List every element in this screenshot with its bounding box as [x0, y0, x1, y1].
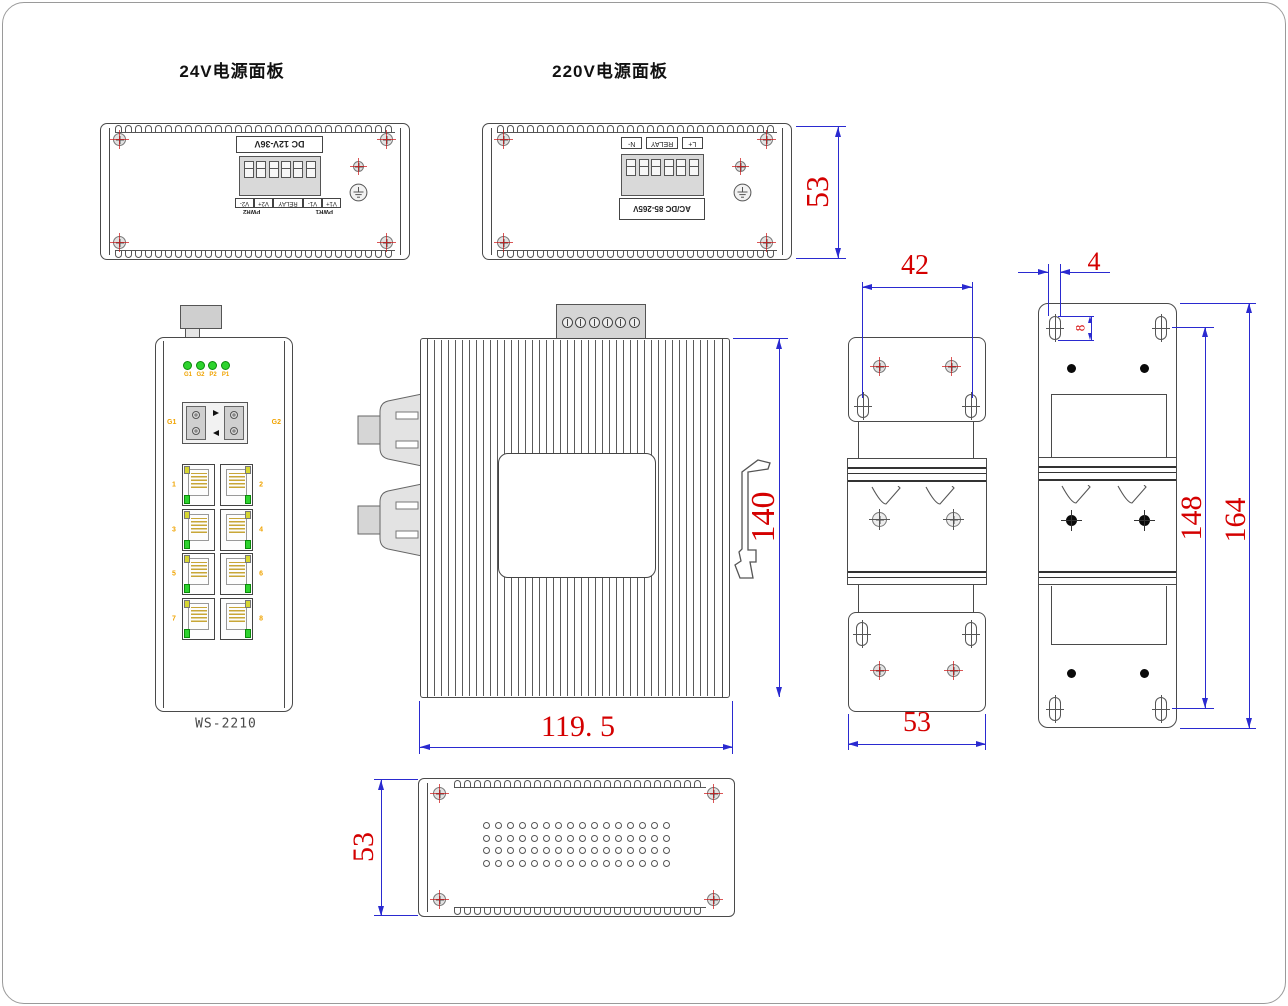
terminal-block-24v: [239, 156, 321, 196]
rail-screw: [946, 512, 961, 527]
title-24v-panel: 24V电源面板: [122, 57, 342, 82]
dim-53-depth: 53: [349, 832, 379, 862]
plate-screw: [873, 664, 886, 677]
ext-line: [1180, 303, 1256, 304]
status-led: P2: [208, 361, 218, 378]
fiber-label-g1: G1: [167, 419, 176, 426]
rail-screw: [872, 512, 887, 527]
mount-slot: [1049, 316, 1061, 340]
ext-line: [796, 258, 846, 259]
corner-screw: [760, 236, 773, 249]
led-label: P1: [221, 372, 231, 378]
ext-line: [1180, 728, 1256, 729]
screw-hole: [1067, 364, 1076, 373]
body-edge-left: [427, 339, 428, 697]
jack-pins-icon: [191, 518, 207, 533]
mount-slot: [965, 622, 977, 646]
rj45-port: 7: [182, 598, 215, 640]
panel-screw: [353, 161, 364, 172]
edge-cap-right: [400, 128, 401, 255]
plate-screw: [945, 360, 958, 373]
jack-pins-icon: [229, 518, 245, 533]
dim-119-5: 119. 5: [541, 712, 615, 742]
drawing-sheet: 24V电源面板 220V电源面板 DC 12V-36V PWR1 PWR2 V1…: [0, 0, 1288, 1006]
terminal-block-top: [556, 304, 646, 340]
mount-slot: [1155, 316, 1167, 340]
body-edge: [973, 422, 974, 458]
ext-line: [1058, 340, 1094, 341]
fiber-module: [182, 402, 248, 444]
mount-slot: [1049, 697, 1061, 721]
led-dot-icon: [183, 361, 192, 370]
terminal-cell: L+: [682, 137, 703, 149]
status-led: G1: [183, 361, 193, 378]
terminal-cell: V2-: [235, 198, 254, 208]
terminal-block-220v: [621, 154, 704, 196]
pwr1-label: PWR1: [316, 208, 333, 214]
earth-ground-icon: [349, 183, 368, 202]
terminal-cells-24v: V1+V1-RELAYV2+V2-: [235, 198, 341, 208]
rail-band: [1039, 577, 1176, 578]
rj45-port: 8: [220, 598, 253, 640]
port-led-green-icon: [245, 629, 251, 638]
led-label: G1: [183, 372, 193, 378]
rail-hole: [1066, 515, 1077, 526]
voltage-label-220v: AC/DC 85-265V: [619, 198, 705, 220]
edge-cap-left: [427, 783, 428, 912]
rail-band: [848, 577, 986, 578]
terminal-cell: RELAY: [646, 137, 677, 149]
corner-screw: [707, 787, 720, 800]
rj45-port: 1: [182, 464, 215, 506]
rail-hole: [1139, 515, 1150, 526]
corner-screw: [113, 236, 126, 249]
corner-screw: [497, 236, 510, 249]
corner-screw: [433, 787, 446, 800]
ext-line: [862, 282, 863, 398]
triangle-left-icon: [213, 430, 219, 436]
mount-slot: [1155, 697, 1167, 721]
edge-scallops-bottom: [454, 907, 706, 915]
dim-line-4-left: [1018, 272, 1048, 273]
body-edge: [858, 585, 859, 612]
terminal-cell: RELAY: [273, 198, 303, 208]
led-row: G1G2P2P1: [183, 361, 231, 378]
body-edge: [858, 422, 859, 458]
body-edge: [973, 585, 974, 612]
triangle-right-icon: [213, 410, 219, 416]
port-number: 2: [259, 482, 263, 489]
led-label: P2: [208, 372, 218, 378]
rail-band: [1039, 466, 1176, 468]
dim-line-8: [1091, 316, 1092, 340]
port-led-yellow-icon: [184, 511, 190, 519]
corner-screw: [113, 133, 126, 146]
title-220v-panel: 220V电源面板: [500, 57, 720, 82]
clip-notch: [1060, 485, 1098, 505]
jack-pins-icon: [229, 607, 245, 622]
port-led-green-icon: [245, 540, 251, 549]
device-edge: [1166, 394, 1167, 458]
rj45-port: 3: [182, 509, 215, 551]
fiber-port-g1: [186, 406, 206, 440]
edge-cap-left: [109, 128, 110, 255]
port-number: 3: [172, 526, 176, 533]
port-led-yellow-icon: [245, 555, 251, 563]
dim-53-bracket: 53: [903, 709, 931, 737]
dim-164: 164: [1221, 498, 1251, 543]
device-edge: [1166, 586, 1167, 644]
port-number: 6: [259, 571, 263, 578]
rail-band: [848, 467, 986, 469]
dim-42: 42: [901, 252, 929, 280]
dim-line-53-panel: [838, 127, 839, 258]
dim-line-53-depth: [381, 780, 382, 916]
port-led-yellow-icon: [184, 466, 190, 474]
mount-plate-top: [848, 337, 986, 422]
terminal-cell: V1+: [322, 198, 341, 208]
rail-band: [848, 480, 986, 482]
jack-pins-icon: [191, 562, 207, 577]
edge-cap-right: [782, 128, 783, 255]
device-edge: [1051, 394, 1167, 395]
panel-screw: [735, 161, 746, 172]
screw-hole: [1140, 669, 1149, 678]
panel-edge-right: [284, 341, 285, 708]
corner-screw: [760, 133, 773, 146]
mount-slot: [857, 394, 869, 418]
clip-notch: [924, 486, 962, 506]
mount-slot: [856, 622, 868, 646]
din-clip-tab: [180, 305, 222, 329]
edge-scallops-top: [497, 125, 777, 133]
dim-140: 140: [747, 492, 781, 543]
port-number: 7: [172, 616, 176, 623]
port-led-green-icon: [184, 495, 190, 504]
edge-scallops-bottom: [497, 250, 777, 258]
port-led-yellow-icon: [184, 555, 190, 563]
plate-screw: [873, 360, 886, 373]
edge-cap-left: [491, 128, 492, 255]
rj45-port: 2: [220, 464, 253, 506]
port-number: 8: [259, 616, 263, 623]
jack-pins-icon: [229, 473, 245, 488]
terminal-labels-220v: L+RELAYN-: [619, 137, 705, 149]
rail-band: [848, 473, 986, 474]
device-edge: [1051, 644, 1167, 645]
corner-screw: [433, 893, 446, 906]
ext-line: [1048, 264, 1049, 316]
led-dot-icon: [208, 361, 217, 370]
fiber-label-g2: G2: [272, 419, 281, 426]
dim-4: 4: [1088, 249, 1101, 275]
screw-hole: [1140, 364, 1149, 373]
port-number: 4: [259, 526, 263, 533]
view-side-heatsink: [420, 338, 730, 698]
view-front-panel: G1G2P2P1 G1 G2 12345678: [155, 337, 293, 712]
earth-ground-icon: [733, 183, 752, 202]
dim-8: 8: [1074, 325, 1087, 332]
ext-line: [1172, 708, 1214, 709]
voltage-label-24v: DC 12V-36V: [236, 136, 323, 153]
port-led-green-icon: [245, 584, 251, 593]
rail-band: [1039, 479, 1176, 481]
model-label: WS-2210: [195, 717, 257, 732]
port-led-green-icon: [184, 540, 190, 549]
dim-line-53-bracket: [848, 744, 986, 745]
port-led-yellow-icon: [245, 466, 251, 474]
dim-line-42: [862, 287, 972, 288]
pwr2-label: PWR2: [243, 208, 260, 214]
rj45-grid: 12345678: [182, 464, 254, 642]
dim-line-4-right: [1060, 272, 1110, 273]
led-dot-icon: [196, 361, 205, 370]
clip-notch: [870, 486, 908, 506]
rail-band: [848, 571, 986, 573]
edge-scallops-top: [454, 780, 706, 788]
dim-53-panel: 53: [801, 176, 833, 208]
dim-148: 148: [1177, 496, 1207, 541]
corner-screw: [707, 893, 720, 906]
rj45-port: 4: [220, 509, 253, 551]
port-number: 5: [172, 571, 176, 578]
terminal-cell: N-: [621, 137, 642, 149]
led-dot-icon: [221, 361, 230, 370]
jack-pins-icon: [191, 473, 207, 488]
jack-pins-icon: [191, 607, 207, 622]
fiber-port-g2: [224, 406, 244, 440]
rail-band: [1039, 571, 1176, 573]
din-rail-section-2: [1038, 457, 1177, 585]
sc-fiber-connector: [356, 392, 422, 558]
device-edge: [1051, 394, 1052, 458]
view-24v-power-panel: DC 12V-36V PWR1 PWR2 V1+V1-RELAYV2+V2-: [100, 123, 410, 260]
vent-hole-grid: [483, 822, 675, 872]
clip-notch: [1116, 485, 1154, 505]
port-led-green-icon: [184, 584, 190, 593]
corner-screw: [380, 236, 393, 249]
terminal-labels-24v: PWR1 PWR2 V1+V1-RELAYV2+V2-: [235, 198, 341, 214]
rail-band: [1039, 472, 1176, 473]
body-edge-right: [722, 339, 723, 697]
rj45-port: 6: [220, 553, 253, 595]
port-led-green-icon: [184, 629, 190, 638]
corner-screw: [380, 133, 393, 146]
rj45-port: 5: [182, 553, 215, 595]
port-led-green-icon: [245, 495, 251, 504]
device-edge: [1051, 586, 1052, 644]
edge-scallops-top: [115, 125, 395, 133]
plate-screw: [947, 664, 960, 677]
led-label: G2: [196, 372, 206, 378]
jack-pins-icon: [229, 562, 245, 577]
view-bottom: [418, 778, 735, 917]
status-led: P1: [221, 361, 231, 378]
panel-edge-left: [163, 341, 164, 708]
mount-slot: [965, 394, 977, 418]
edge-scallops-bottom: [115, 250, 395, 258]
screw-hole: [1067, 669, 1076, 678]
ext-line: [972, 282, 973, 398]
mount-plate-bottom: [848, 612, 986, 712]
port-number: 1: [172, 482, 176, 489]
dim-line-119-5: [420, 747, 733, 748]
port-led-yellow-icon: [245, 600, 251, 608]
status-led: G2: [196, 361, 206, 378]
nameplate-area: [498, 453, 656, 578]
din-rail-section: [847, 458, 987, 585]
port-led-yellow-icon: [245, 511, 251, 519]
terminal-cell: V2+: [254, 198, 273, 208]
view-220v-power-panel: L+RELAYN- AC/DC 85-265V: [482, 123, 792, 260]
corner-screw: [497, 133, 510, 146]
terminal-cell: V1-: [303, 198, 322, 208]
port-led-yellow-icon: [184, 600, 190, 608]
